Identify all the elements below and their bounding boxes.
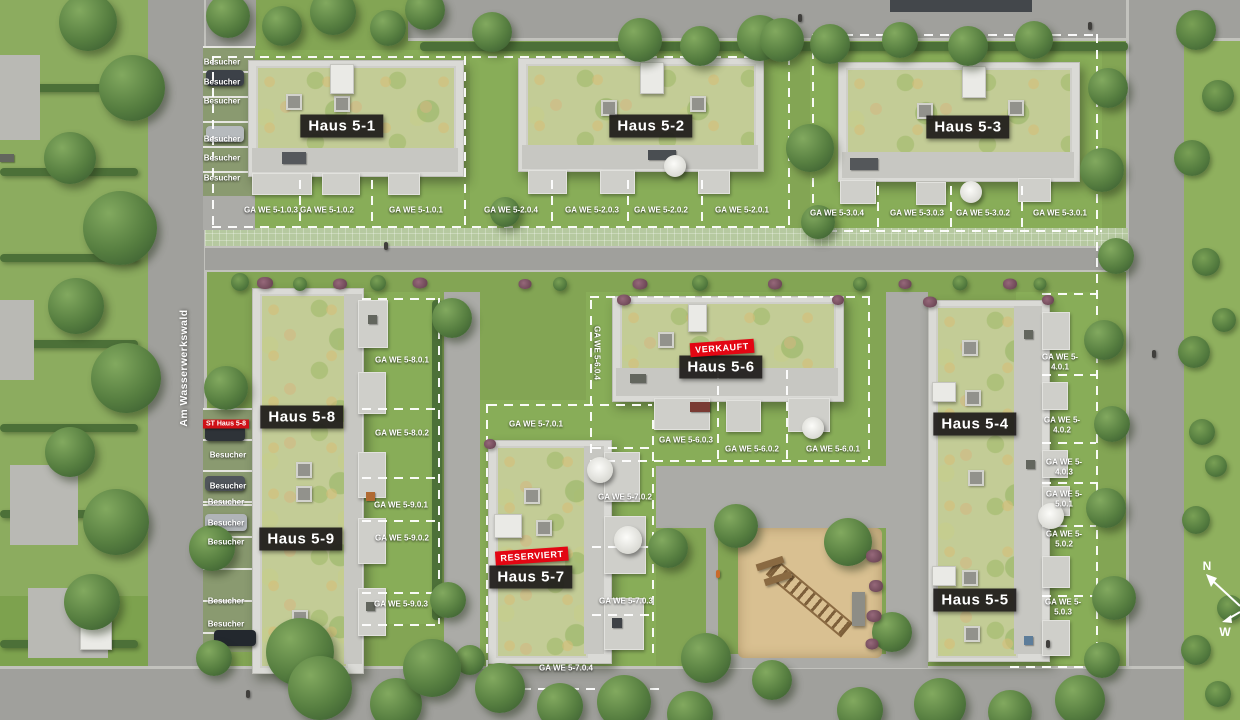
garden-label-5-3-0-4: GA WE 5-3.0.4: [810, 209, 864, 218]
visitor-parking-label: Besucher: [208, 620, 244, 629]
garden-label-5-9-0-2: GA WE 5-9.0.2: [375, 534, 429, 543]
garden-label-5-4-0-1: GA WE 5-4.0.1: [1037, 353, 1083, 374]
parcel-line: [362, 477, 438, 479]
tree: [475, 663, 525, 713]
neighbor-terrace: [0, 300, 34, 380]
roof-hatch: [524, 488, 540, 504]
flower-shrub: [867, 610, 882, 622]
house-label-5-1: Haus 5-1: [300, 115, 383, 138]
parcel-line: [299, 180, 301, 226]
roof-hatch: [296, 462, 312, 478]
garden-label-5-3-0-2: GA WE 5-3.0.2: [956, 209, 1010, 218]
tree: [1098, 238, 1134, 274]
parcel-line: [362, 408, 438, 410]
pedestrian: [716, 570, 720, 578]
bush: [1176, 10, 1216, 50]
tree: [262, 6, 302, 46]
garden-label-5-3-0-1: GA WE 5-3.0.1: [1033, 209, 1087, 218]
garden-label-5-9-0-1: GA WE 5-9.0.1: [374, 501, 428, 510]
roof-hatch: [658, 332, 674, 348]
roof-hatch: [964, 626, 980, 642]
tree: [204, 366, 248, 410]
parcel-line: [464, 56, 466, 228]
street-name-label: Am Wasserwerkswald: [178, 309, 190, 426]
compass-west-label: W: [1219, 625, 1231, 639]
parcel-line: [362, 520, 438, 522]
parcel-line: [592, 614, 652, 616]
garden-label-5-6-0-4: GA WE 5-6.0.4: [593, 326, 602, 380]
tree: [1080, 148, 1124, 192]
north-arrow-icon: [1206, 574, 1217, 587]
garden-label-5-6-0-1: GA WE 5-6.0.1: [806, 445, 860, 454]
garden-label-5-6-0-3: GA WE 5-6.0.3: [659, 436, 713, 445]
garden-label-5-7-0-1: GA WE 5-7.0.1: [509, 420, 563, 429]
parcel-line: [590, 296, 868, 298]
parcel-line: [212, 56, 464, 58]
garden-label-5-1-0-2: GA WE 5-1.0.2: [300, 206, 354, 215]
garden-label-5-7-0-2: GA WE 5-7.0.2: [598, 493, 652, 502]
tree: [91, 343, 161, 413]
terrace-box: [916, 182, 946, 205]
compass-north-label: N: [1203, 559, 1212, 573]
site-plan: Am Wasserwerkswald Haus 5-1 Haus 5-2 Hau…: [0, 0, 1240, 720]
stair-skylight: [330, 64, 354, 94]
bush: [1202, 80, 1234, 112]
terrace-box: [322, 173, 360, 195]
parcel-line: [362, 592, 438, 594]
parcel-line: [701, 180, 703, 226]
visitor-parking-label: Besucher: [204, 97, 240, 106]
garden-label-5-4-0-2: GA WE 5-4.0.2: [1039, 416, 1085, 437]
terrace-furniture: [282, 152, 306, 164]
neighbor-roof: [890, 0, 1032, 12]
garden-label-5-7-0-3: GA WE 5-7.0.3: [599, 597, 653, 606]
parcel-line: [472, 226, 790, 228]
parcel-line: [1042, 374, 1096, 376]
pedestrian: [1088, 22, 1092, 30]
bush: [953, 276, 968, 291]
west-arrow-icon: [1222, 615, 1232, 623]
parcel-line: [438, 298, 440, 624]
terrace-box: [1042, 556, 1070, 588]
bush: [553, 277, 567, 291]
house-label-5-5: Haus 5-5: [933, 589, 1016, 612]
flower-shrub: [899, 279, 912, 289]
garden-label-5-9-0-3: GA WE 5-9.0.3: [374, 600, 428, 609]
terrace-furniture: [0, 154, 14, 162]
garden-label-5-5-0-1: GA WE 5-5.0.1: [1041, 490, 1087, 511]
hedge: [432, 300, 442, 620]
stair-skylight: [962, 66, 986, 98]
flower-shrub: [1042, 295, 1054, 305]
parcel-line: [1021, 186, 1023, 232]
flower-shrub: [333, 279, 347, 290]
tree: [824, 518, 872, 566]
terrace-furniture: [1024, 636, 1033, 645]
tree: [45, 427, 95, 477]
visitor-parking-label: Besucher: [208, 597, 244, 606]
parcel-line: [627, 180, 629, 226]
tree: [64, 574, 120, 630]
terrace-furniture: [630, 374, 646, 383]
roof-hatch: [536, 520, 552, 536]
visitor-parking-label: Besucher: [208, 498, 244, 507]
curb: [205, 246, 1128, 248]
visitor-parking-label: Besucher: [210, 451, 246, 460]
flower-shrub: [832, 295, 844, 305]
parcel-line: [1010, 666, 1096, 668]
flower-shrub: [923, 297, 937, 308]
bush: [1212, 308, 1236, 332]
flower-shrub: [633, 279, 648, 290]
terrace-box: [252, 173, 312, 195]
tree: [83, 489, 149, 555]
flower-shrub: [1003, 279, 1017, 290]
tree: [680, 26, 720, 66]
roof-hatch: [296, 486, 312, 502]
bush: [231, 273, 249, 291]
terrace-furniture: [1024, 330, 1033, 339]
parasol: [802, 417, 824, 439]
pedestrian: [798, 14, 802, 22]
stair-skylight: [688, 304, 707, 332]
tree: [1086, 488, 1126, 528]
terrace-box: [1042, 382, 1068, 410]
flower-shrub: [413, 278, 428, 289]
tree: [786, 124, 834, 172]
flower-shrub: [617, 295, 631, 306]
stair-skylight: [640, 62, 664, 94]
parcel-line: [362, 298, 438, 300]
tree: [648, 528, 688, 568]
tree: [432, 298, 472, 338]
tree: [99, 55, 165, 121]
roof-hatch: [334, 96, 350, 112]
visitor-parking-label: Besucher: [204, 78, 240, 87]
bush: [1182, 506, 1210, 534]
pedestrian: [1152, 350, 1156, 358]
tree: [1088, 68, 1128, 108]
terrace-furniture: [1026, 460, 1035, 469]
garden-label-5-1-0-3: GA WE 5-1.0.3: [244, 206, 298, 215]
flower-shrub: [519, 279, 532, 289]
flower-shrub: [484, 439, 496, 449]
bush: [1034, 278, 1047, 291]
garden-label-5-1-0-1: GA WE 5-1.0.1: [389, 206, 443, 215]
parcel-line: [592, 447, 652, 449]
stair-skylight: [932, 566, 956, 586]
tree: [810, 24, 850, 64]
garden-label-5-2-0-3: GA WE 5-2.0.3: [565, 206, 619, 215]
tree: [597, 675, 651, 720]
bush: [1189, 419, 1215, 445]
house-label-5-2: Haus 5-2: [609, 115, 692, 138]
parcel-line: [950, 186, 952, 232]
tree: [472, 12, 512, 52]
bush: [293, 277, 307, 291]
tree: [48, 278, 104, 334]
parcel-line: [371, 180, 373, 226]
house-label-5-4: Haus 5-4: [933, 413, 1016, 436]
bush: [853, 277, 867, 291]
roof-hatch: [962, 570, 978, 586]
terrace-box: [726, 400, 761, 432]
right-road: [1128, 0, 1184, 720]
parcel-line: [590, 460, 868, 462]
roof-hatch: [1008, 100, 1024, 116]
tree: [1094, 406, 1130, 442]
pedestrian: [384, 242, 388, 250]
tree: [1092, 576, 1136, 620]
flower-shrub: [869, 580, 883, 592]
visitor-parking-label: Besucher: [208, 519, 244, 528]
stair-skylight: [932, 382, 956, 402]
parcel-line: [551, 180, 553, 226]
garden-label-5-3-0-3: GA WE 5-3.0.3: [890, 209, 944, 218]
visitor-parking-label: Besucher: [204, 154, 240, 163]
stair-skylight: [494, 514, 522, 538]
terrace-furniture: [368, 315, 377, 324]
tree: [83, 191, 157, 265]
visitor-parking-label: Besucher: [204, 135, 240, 144]
house-label-5-6: Haus 5-6: [679, 356, 762, 379]
terrace-box: [840, 180, 876, 204]
garden-label-5-2-0-4: GA WE 5-2.0.4: [484, 206, 538, 215]
tree: [1015, 21, 1053, 59]
terrace-furniture: [850, 158, 878, 170]
roof-hatch: [962, 340, 978, 356]
parcel-line: [1042, 482, 1096, 484]
roof-hatch: [690, 96, 706, 112]
bush: [1205, 681, 1231, 707]
parasol: [614, 526, 642, 554]
tree: [196, 640, 232, 676]
garden-label-5-8-0-1: GA WE 5-8.0.1: [375, 356, 429, 365]
garden-label-5-7-0-4: GA WE 5-7.0.4: [539, 664, 593, 673]
bush: [1174, 140, 1210, 176]
roof-hatch: [286, 94, 302, 110]
parcel-line: [488, 404, 652, 406]
house-label-5-7: Haus 5-7: [489, 566, 572, 589]
terrace-box: [1042, 620, 1070, 656]
terrace-box: [1042, 312, 1070, 350]
parcel-line: [717, 370, 719, 460]
terrace-box: [358, 588, 386, 636]
terrace-furniture: [690, 402, 710, 412]
garden-label-5-4-0-3: GA WE 5-4.0.3: [1041, 458, 1087, 479]
garden-label-5-5-0-3: GA WE 5-5.0.3: [1040, 598, 1086, 619]
tree: [1055, 675, 1105, 720]
tree: [760, 18, 804, 62]
visitor-parking-label: Besucher: [208, 538, 244, 547]
terrace-box: [604, 598, 644, 650]
tree: [430, 582, 466, 618]
tree: [752, 660, 792, 700]
bush: [1178, 336, 1210, 368]
bench: [852, 592, 865, 626]
terrace-furniture: [612, 618, 622, 628]
tree: [1084, 320, 1124, 360]
visitor-parking-label: Besucher: [204, 174, 240, 183]
terrace-box: [528, 170, 567, 194]
tree: [189, 525, 235, 571]
roof-hatch: [965, 390, 981, 406]
tree: [44, 132, 96, 184]
terrace-box: [600, 170, 635, 194]
tree: [403, 639, 461, 697]
parcel-line: [812, 230, 1102, 232]
terrace-box: [358, 300, 388, 348]
parcel-line: [212, 226, 466, 228]
tree: [681, 633, 731, 683]
roof-hatch: [968, 470, 984, 486]
visitor-parking-label: Besucher: [204, 58, 240, 67]
bush: [692, 275, 708, 291]
tree: [288, 656, 352, 720]
flower-shrub: [866, 550, 882, 563]
garden-label-5-5-0-2: GA WE 5-5.0.2: [1041, 530, 1087, 551]
tree: [370, 10, 406, 46]
bush: [1192, 248, 1220, 276]
parcel-line: [868, 296, 870, 460]
main-residential-road: [205, 248, 1128, 272]
visitor-parking-label: Besucher: [210, 482, 246, 491]
house-label-5-8: Haus 5-8: [260, 406, 343, 429]
tree: [714, 504, 758, 548]
tree: [948, 26, 988, 66]
garden-label-5-2-0-2: GA WE 5-2.0.2: [634, 206, 688, 215]
bush: [1205, 455, 1227, 477]
garden-label-5-2-0-1: GA WE 5-2.0.1: [715, 206, 769, 215]
parcel-line: [1042, 442, 1096, 444]
green-roof: [846, 68, 1072, 156]
flower-shrub: [768, 279, 782, 290]
terrace: [522, 145, 758, 169]
neighbor-terrace: [0, 55, 40, 140]
parcel-line: [786, 370, 788, 460]
curb: [205, 270, 1128, 272]
compass-rose: N W: [1180, 550, 1240, 670]
flower-shrub: [866, 639, 879, 650]
parcel-line: [877, 186, 879, 232]
tree: [618, 18, 662, 62]
pedestrian: [246, 690, 250, 698]
parcel-line: [362, 624, 438, 626]
parasol: [664, 155, 686, 177]
house-label-5-3: Haus 5-3: [926, 116, 1009, 139]
tree: [310, 0, 356, 35]
parasol: [960, 181, 982, 203]
tree: [882, 22, 918, 58]
flower-shrub: [257, 277, 273, 289]
st-garage-label: ST Haus 5-8: [203, 420, 249, 429]
terrace-box: [388, 173, 420, 195]
parasol: [587, 457, 613, 483]
house-label-5-9: Haus 5-9: [259, 528, 342, 551]
neighbor-terrace: [10, 465, 78, 545]
tree: [1084, 642, 1120, 678]
garden-label-5-8-0-2: GA WE 5-8.0.2: [375, 429, 429, 438]
pedestrian: [1046, 640, 1050, 648]
bush: [370, 275, 386, 291]
garden-label-5-6-0-2: GA WE 5-6.0.2: [725, 445, 779, 454]
